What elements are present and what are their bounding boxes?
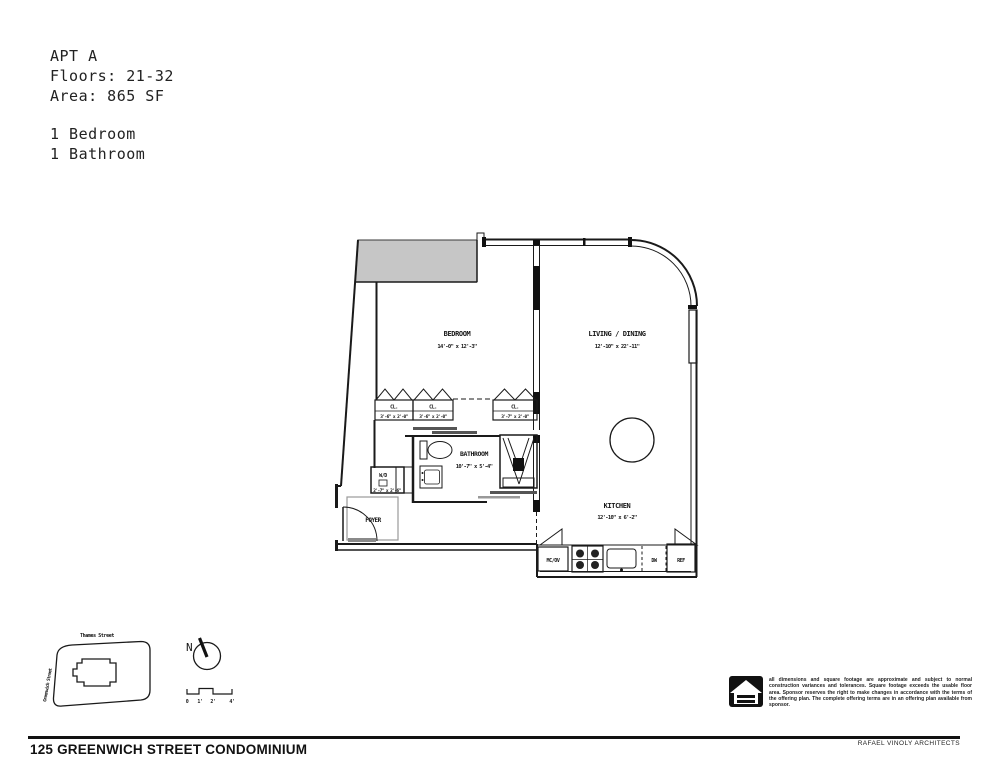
scale-bar-line — [187, 689, 232, 695]
faucet-dot — [422, 472, 424, 474]
scale-tick-4: 4' — [229, 699, 234, 705]
closet-label: CL. — [429, 405, 437, 411]
closet-label: CL. — [511, 405, 519, 411]
shower-drain — [513, 458, 524, 471]
curved-window-outer — [631, 240, 697, 306]
kitchen-sink — [607, 549, 636, 572]
foyer-area: FOYER — [343, 497, 398, 542]
thames-street-label: Thames Street — [80, 633, 114, 639]
range-appliance — [572, 546, 603, 572]
closet-dims: 3'-7" x 2'-0" — [501, 414, 529, 420]
scale-bar: 0 1' 2' 4' — [186, 689, 235, 706]
mullion — [688, 305, 697, 309]
sliding-door — [432, 431, 477, 434]
burner — [576, 550, 584, 558]
bedroom-label: BEDROOM — [444, 330, 471, 338]
living-dims: 12'-10" x 22'-11" — [595, 344, 640, 350]
living-dining-area: LIVING / DINING 12'-10" x 22'-11" — [588, 330, 654, 462]
greenwich-street-label: Greenwich Street — [42, 667, 54, 702]
north-arrow: N — [186, 638, 221, 670]
faucet-dot — [620, 569, 623, 572]
burner — [591, 561, 599, 569]
closet-3: CL. 3'-7" x 2'-0" — [493, 389, 537, 420]
cabinet-flap — [540, 529, 562, 545]
mullion — [628, 237, 632, 247]
interior-wall-bedroom-living — [533, 240, 540, 544]
kitchen-label: KITCHEN — [604, 502, 631, 510]
foyer-label: FOYER — [365, 517, 381, 524]
wd-label: W/D — [379, 473, 387, 479]
floor-plan-drawing: BEDROOM 14'-0" x 12'-3" CL. 3'-6" x 2'-0… — [0, 0, 990, 760]
kitchen-area: KITCHEN 12'-10" x 6'-2" MC/OV — [537, 502, 697, 572]
bathroom-label: BATHROOM — [460, 450, 489, 458]
wall-fill — [533, 266, 540, 310]
closet-label: CL. — [390, 405, 398, 411]
dining-table — [610, 418, 654, 462]
scale-tick-2: 2' — [210, 699, 215, 705]
north-label: N — [186, 641, 193, 654]
burner — [576, 561, 584, 569]
closet-dims: 3'-6" x 2'-0" — [419, 414, 447, 420]
mullion — [482, 237, 486, 247]
sink-basin — [607, 549, 636, 568]
sliding-door — [413, 427, 457, 430]
compass-needle — [200, 638, 208, 657]
kitchen-dims: 12'-10" x 6'-2" — [597, 515, 637, 521]
mcov-label: MC/OV — [546, 558, 559, 564]
eho-equal-bar — [737, 700, 755, 703]
faucet-dot — [422, 479, 424, 481]
toilet-tank — [420, 441, 427, 459]
dw-label: DW — [651, 558, 658, 564]
living-label: LIVING / DINING — [588, 330, 645, 338]
closets: CL. 3'-6" x 2'-0" CL. 3'-6" x 2'-0" CL. — [375, 389, 537, 420]
sink-counter — [420, 466, 442, 488]
ref-label: REF — [677, 558, 685, 564]
hanger-symbol — [515, 389, 536, 400]
site-map: Thames Street Greenwich Street — [42, 633, 150, 706]
washer-dryer-area: W/D 2'-7" x 2'-6" — [371, 467, 413, 494]
closet-dims: 3'-6" x 2'-0" — [380, 414, 408, 420]
toilet-fixture — [420, 441, 452, 459]
scale-tick-0: 0 — [186, 699, 189, 705]
cabinet-flap — [675, 529, 697, 545]
wall-fill — [533, 500, 540, 512]
wall-fill — [533, 240, 540, 245]
scale-tick-1: 1' — [197, 699, 202, 705]
footer-rule — [28, 736, 960, 739]
entry-door-swing — [343, 507, 377, 541]
floorplan-sheet: APT A Floors: 21-32 Area: 865 SF 1 Bedro… — [0, 0, 990, 760]
wall-left-diagonal — [341, 240, 358, 486]
hanger-symbol — [433, 389, 452, 400]
hanger-symbol — [376, 389, 394, 400]
sink-basin — [425, 470, 440, 484]
burner — [591, 550, 599, 558]
city-block-outline — [53, 642, 150, 707]
closet-1: CL. 3'-6" x 2'-0" — [375, 389, 413, 420]
wd-door-symbol — [379, 480, 387, 486]
curved-window-inner — [631, 246, 691, 306]
hanger-symbol — [394, 389, 412, 400]
bathroom-dims: 10'-7" x 5'-4" — [456, 464, 493, 470]
entry-threshold — [348, 538, 376, 542]
wd-dims: 2'-7" x 2'-6" — [373, 488, 401, 494]
bedroom-dims: 14'-0" x 12'-3" — [437, 344, 477, 350]
bathroom-area: BATHROOM 10'-7" x 5'-4" — [405, 435, 537, 503]
shower-fixture — [500, 435, 537, 488]
toilet-bowl — [428, 442, 452, 459]
mullion — [583, 238, 586, 246]
building-footprint — [73, 659, 116, 686]
building-title: 125 GREENWICH STREET CONDOMINIUM — [30, 742, 307, 757]
eho-equal-bar — [737, 695, 755, 698]
architect-credit: RAFAEL VINOLY ARCHITECTS — [858, 740, 960, 747]
hanger-symbol — [494, 389, 515, 400]
hanger-symbol — [414, 389, 433, 400]
closet-2: CL. 3'-6" x 2'-0" — [413, 389, 453, 420]
wd-wall-block — [404, 467, 413, 493]
sliding-door — [490, 491, 537, 494]
legal-disclaimer: all dimensions and square footage are ap… — [769, 677, 972, 708]
wall-poche — [355, 240, 477, 282]
equal-housing-icon — [729, 676, 763, 707]
sink-fixture — [420, 466, 442, 488]
sliding-door — [478, 496, 520, 499]
